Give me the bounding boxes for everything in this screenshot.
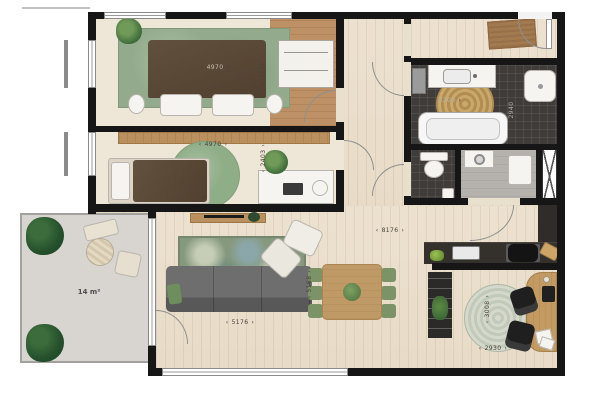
nightstand-left — [128, 94, 145, 114]
shower-tray — [524, 70, 556, 102]
desk-lamp — [543, 276, 550, 283]
walk-in-closet — [278, 40, 334, 88]
wall-utility-shaft — [536, 150, 542, 205]
entry-door-leaf — [546, 19, 552, 49]
window-terrace-door — [148, 218, 156, 346]
cooktop — [506, 244, 540, 262]
tv — [204, 215, 244, 218]
washing-machine-door — [474, 154, 485, 165]
dim-living-depth: 5168 — [305, 264, 315, 304]
wall-bed2-living — [88, 204, 344, 212]
dining-chair-r3 — [381, 304, 396, 318]
vanity-faucet — [473, 74, 477, 78]
bathtub — [418, 112, 508, 145]
sideboard-plant — [248, 212, 260, 222]
window-top-bedroom1b — [226, 12, 292, 19]
window-bottom-living — [162, 368, 348, 376]
washing-machine — [464, 150, 494, 168]
wall-entry-bath — [404, 58, 565, 65]
dining-chair-r2 — [381, 286, 396, 300]
table-centerpiece-plant — [343, 283, 361, 301]
window-left-bedroom2 — [88, 132, 96, 176]
vanity-sink-basin — [443, 69, 471, 84]
shaft — [542, 148, 557, 205]
double-bed-pillow-left — [160, 94, 202, 116]
dim-bath-width: 3200 — [425, 96, 469, 106]
door-gap-bathroom — [404, 62, 411, 96]
bathtub-inner — [426, 118, 500, 140]
dim-bath-depth: 2940 — [507, 90, 517, 130]
door-gap-wc — [404, 162, 411, 196]
nightstand-right — [266, 94, 283, 114]
dim-bedroom2-width: 4970 — [183, 140, 243, 150]
closet-rail — [284, 52, 328, 53]
double-bed-pillow-right — [212, 94, 254, 116]
door-gap-bedroom1 — [336, 88, 344, 122]
shower-drain — [538, 84, 543, 89]
window-left-bedroom1 — [88, 40, 96, 88]
single-bed — [108, 158, 210, 204]
toilet-bowl — [424, 160, 444, 178]
kitchen-tall-cabinet — [538, 205, 557, 242]
balcony-railing-2 — [64, 132, 68, 176]
wall-right — [557, 12, 565, 376]
dim-bedroom1-width: 4970 — [185, 63, 245, 73]
dining-chair-r1 — [381, 268, 396, 282]
desk-monitor — [542, 286, 555, 302]
balcony-railing-1 — [64, 40, 68, 88]
vanity-counter — [428, 64, 496, 88]
dim-bedroom1-depth: 3120 — [259, 50, 269, 90]
dim-living-width: 8176 — [360, 226, 420, 236]
single-bed-pillow — [111, 162, 130, 200]
dining-chair-l3 — [308, 304, 323, 318]
door-gap-bedroom2 — [336, 140, 344, 170]
wall-study — [432, 263, 557, 270]
boiler-unit — [508, 155, 532, 185]
terrace-chair-right — [114, 250, 142, 278]
desk-stool — [312, 180, 328, 196]
single-bed-blanket — [133, 160, 207, 202]
produce-basket — [430, 250, 444, 261]
window-top-bedroom1 — [104, 12, 166, 19]
dim-bedroom2-depth: 2403 — [259, 138, 269, 178]
dim-study-depth: 3008 — [483, 289, 493, 329]
dim-living-width2: 5176 — [210, 318, 270, 328]
terrace-area-label: 14 m² — [59, 287, 119, 297]
bedroom1-plant — [116, 18, 142, 44]
kitchen-sink — [452, 246, 480, 260]
floor-plan: 14 m² — [0, 0, 600, 400]
double-bed — [148, 40, 266, 118]
dim-study-width: 2930 — [463, 344, 523, 354]
bathroom-shelf — [412, 68, 426, 94]
laptop — [283, 183, 303, 195]
wall-wc-utility — [455, 150, 461, 205]
door-gap-kitchen — [468, 198, 520, 205]
bookshelf-plant — [432, 296, 448, 320]
wall-bed-divider — [88, 126, 342, 132]
terrace-table — [86, 238, 114, 266]
door-gap-entry-hall — [404, 24, 411, 56]
sofa-pillow-green — [167, 283, 183, 305]
roof-slab-line — [22, 7, 90, 9]
door-gap-front — [518, 12, 552, 19]
closet-rail-2 — [284, 70, 328, 71]
